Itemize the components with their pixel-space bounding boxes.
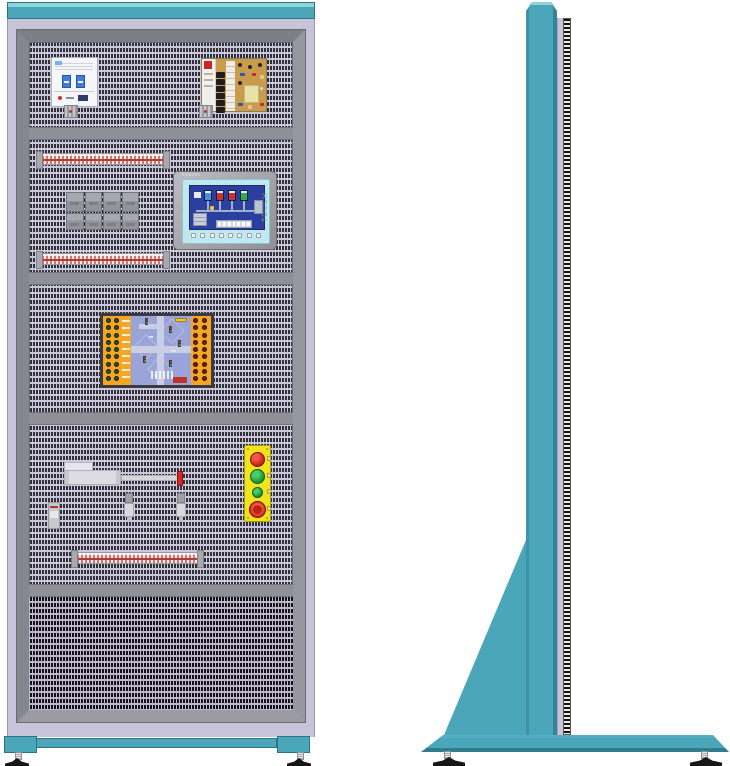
psu-brand-logo: [204, 61, 212, 69]
base-block-left: [4, 736, 37, 753]
emergency-stop-button[interactable]: [249, 501, 266, 518]
jack-labels: [122, 320, 130, 378]
leveling-foot: [433, 757, 465, 766]
jack-strip-right: [191, 316, 211, 385]
hmi-touch-label: TOUCH: [262, 188, 269, 226]
relay-row-top: [66, 192, 139, 212]
mimic-tanks: [204, 190, 248, 201]
breaker-toggle[interactable]: [62, 75, 71, 88]
hmi-panel: SIEMENS: [173, 171, 277, 250]
mimic-sensor-box: [194, 192, 201, 198]
traffic-light-icon: [169, 326, 172, 333]
traffic-mimic-area: [131, 316, 191, 385]
psu-terminal-block: [216, 72, 225, 113]
green-pushbutton[interactable]: [250, 469, 265, 484]
panel-divider: [29, 412, 293, 425]
base-block-right: [277, 736, 310, 753]
hmi-inner-frame: TOUCH: [182, 179, 270, 244]
cabinet-body: SIEMENS: [7, 19, 315, 737]
green-jack-column: [114, 318, 119, 381]
red-tag: [173, 377, 187, 383]
leveling-foot: [5, 758, 29, 766]
jack-strip-left: [103, 316, 131, 385]
switching-power-supply: [201, 58, 267, 112]
side-cap-highlight: [529, 2, 554, 5]
panel-divider: [29, 127, 293, 140]
relay-module-row: [66, 192, 139, 230]
breaker-indicator: [58, 96, 62, 100]
breaker-separator: [54, 91, 94, 92]
crosswalk: [151, 371, 173, 379]
base-plate: [421, 735, 729, 752]
plc-training-board: [100, 313, 214, 388]
panel-divider: [29, 584, 293, 597]
traffic-light-icon: [145, 318, 148, 325]
road-horizontal: [131, 346, 191, 353]
red-jack-column: [202, 318, 207, 381]
cabinet-illustration: SIEMENS: [0, 0, 730, 766]
pneumatic-cylinder: [64, 470, 121, 485]
psu-transformer: [244, 85, 259, 103]
breaker-marking: [66, 97, 74, 99]
cylinder-rod-tip: [177, 471, 183, 486]
leveling-foot: [287, 758, 311, 766]
side-column: [526, 2, 557, 737]
panel-divider: [29, 272, 293, 285]
mounting-rail-stripe: [563, 18, 571, 735]
position-sensor: [124, 493, 134, 522]
cabinet-side-view: [420, 2, 730, 766]
mimic-machine: [193, 213, 207, 226]
cylinder-rod: [121, 475, 179, 481]
support-gusset: [444, 540, 526, 735]
din-rail-clamp: [64, 105, 78, 118]
red-jack-column: [193, 318, 198, 381]
breaker-brand-tag: [55, 61, 62, 65]
hmi-screen[interactable]: [189, 185, 265, 230]
hmi-brand-label: SIEMENS: [182, 173, 200, 177]
breaker-toggle[interactable]: [76, 75, 85, 88]
mimic-conveyor: [216, 220, 252, 228]
leveling-foot: [690, 757, 722, 766]
terminal-strip: [39, 253, 167, 265]
psu-spec-strip: [226, 61, 235, 111]
traffic-light-icon: [143, 356, 146, 363]
cabinet-top-cap: [7, 2, 315, 19]
bottom-blank-panel: [29, 597, 293, 710]
hmi-function-keys[interactable]: [191, 233, 261, 239]
red-pushbutton[interactable]: [250, 452, 265, 467]
mimic-pipe: [196, 210, 258, 212]
traffic-light-icon: [178, 340, 181, 347]
terminal-strip: [39, 153, 167, 165]
traffic-light-icon: [169, 360, 172, 367]
road-stub: [139, 324, 157, 329]
yellow-tag: [175, 318, 187, 322]
circuit-breaker: [51, 57, 98, 107]
terminal-strip: [74, 552, 201, 564]
breaker-rating-label: [78, 95, 88, 101]
solenoid-valve: [48, 502, 60, 529]
base-crossbar: [36, 738, 277, 748]
perforated-panel: SIEMENS: [29, 42, 293, 710]
small-green-pushbutton[interactable]: [252, 487, 263, 498]
din-rail-clamp: [199, 105, 213, 118]
green-jack-column: [106, 318, 111, 381]
cabinet-front-view: SIEMENS: [7, 2, 315, 766]
panel-frame: SIEMENS: [17, 30, 305, 722]
pushbutton-station: [244, 445, 271, 522]
relay-row-bottom: [66, 213, 139, 230]
position-sensor: [176, 493, 186, 522]
